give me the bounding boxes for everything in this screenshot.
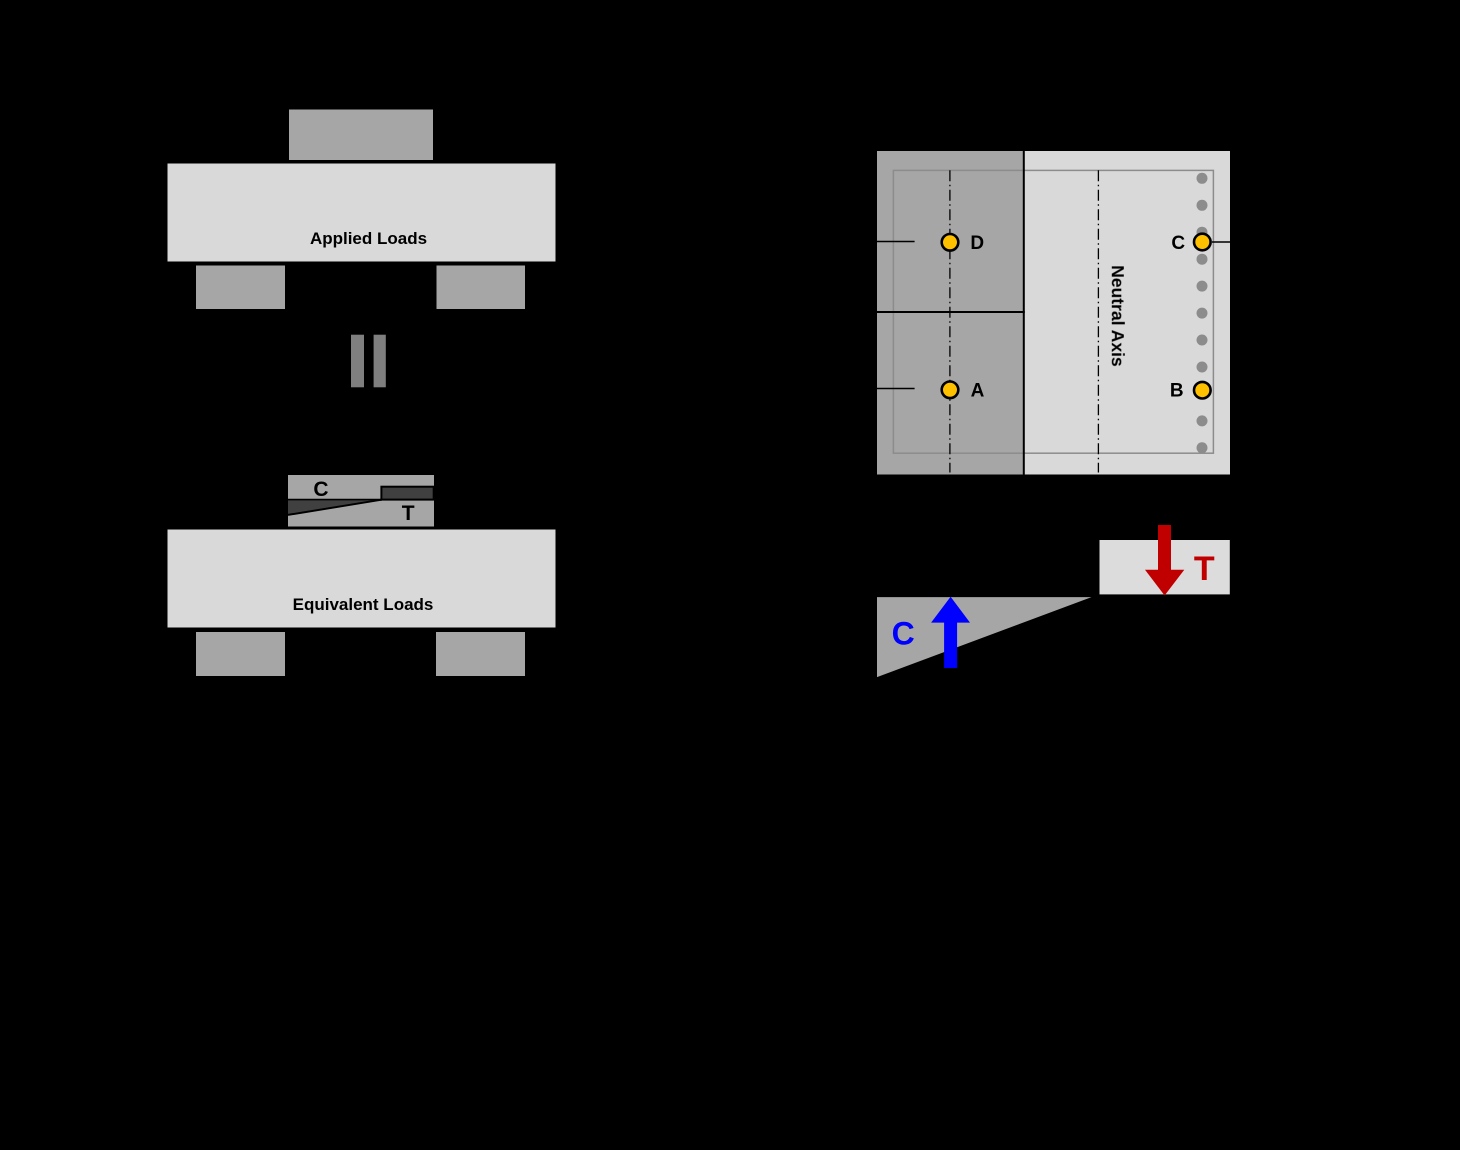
svg-text:C: C	[313, 478, 328, 501]
svg-text:A: A	[971, 381, 985, 402]
svg-text:C: C	[1171, 233, 1185, 254]
svg-text:T: T	[402, 502, 415, 525]
svg-text:Neutral Axis: Neutral Axis	[1108, 265, 1128, 367]
svg-text:T: T	[1194, 550, 1215, 588]
svg-text:Applied Loads: Applied Loads	[310, 229, 427, 248]
svg-text:C: C	[892, 616, 915, 652]
svg-text:B: B	[1170, 381, 1184, 402]
svg-text:D: D	[970, 233, 984, 254]
svg-text:Equivalent Loads: Equivalent Loads	[293, 595, 434, 614]
